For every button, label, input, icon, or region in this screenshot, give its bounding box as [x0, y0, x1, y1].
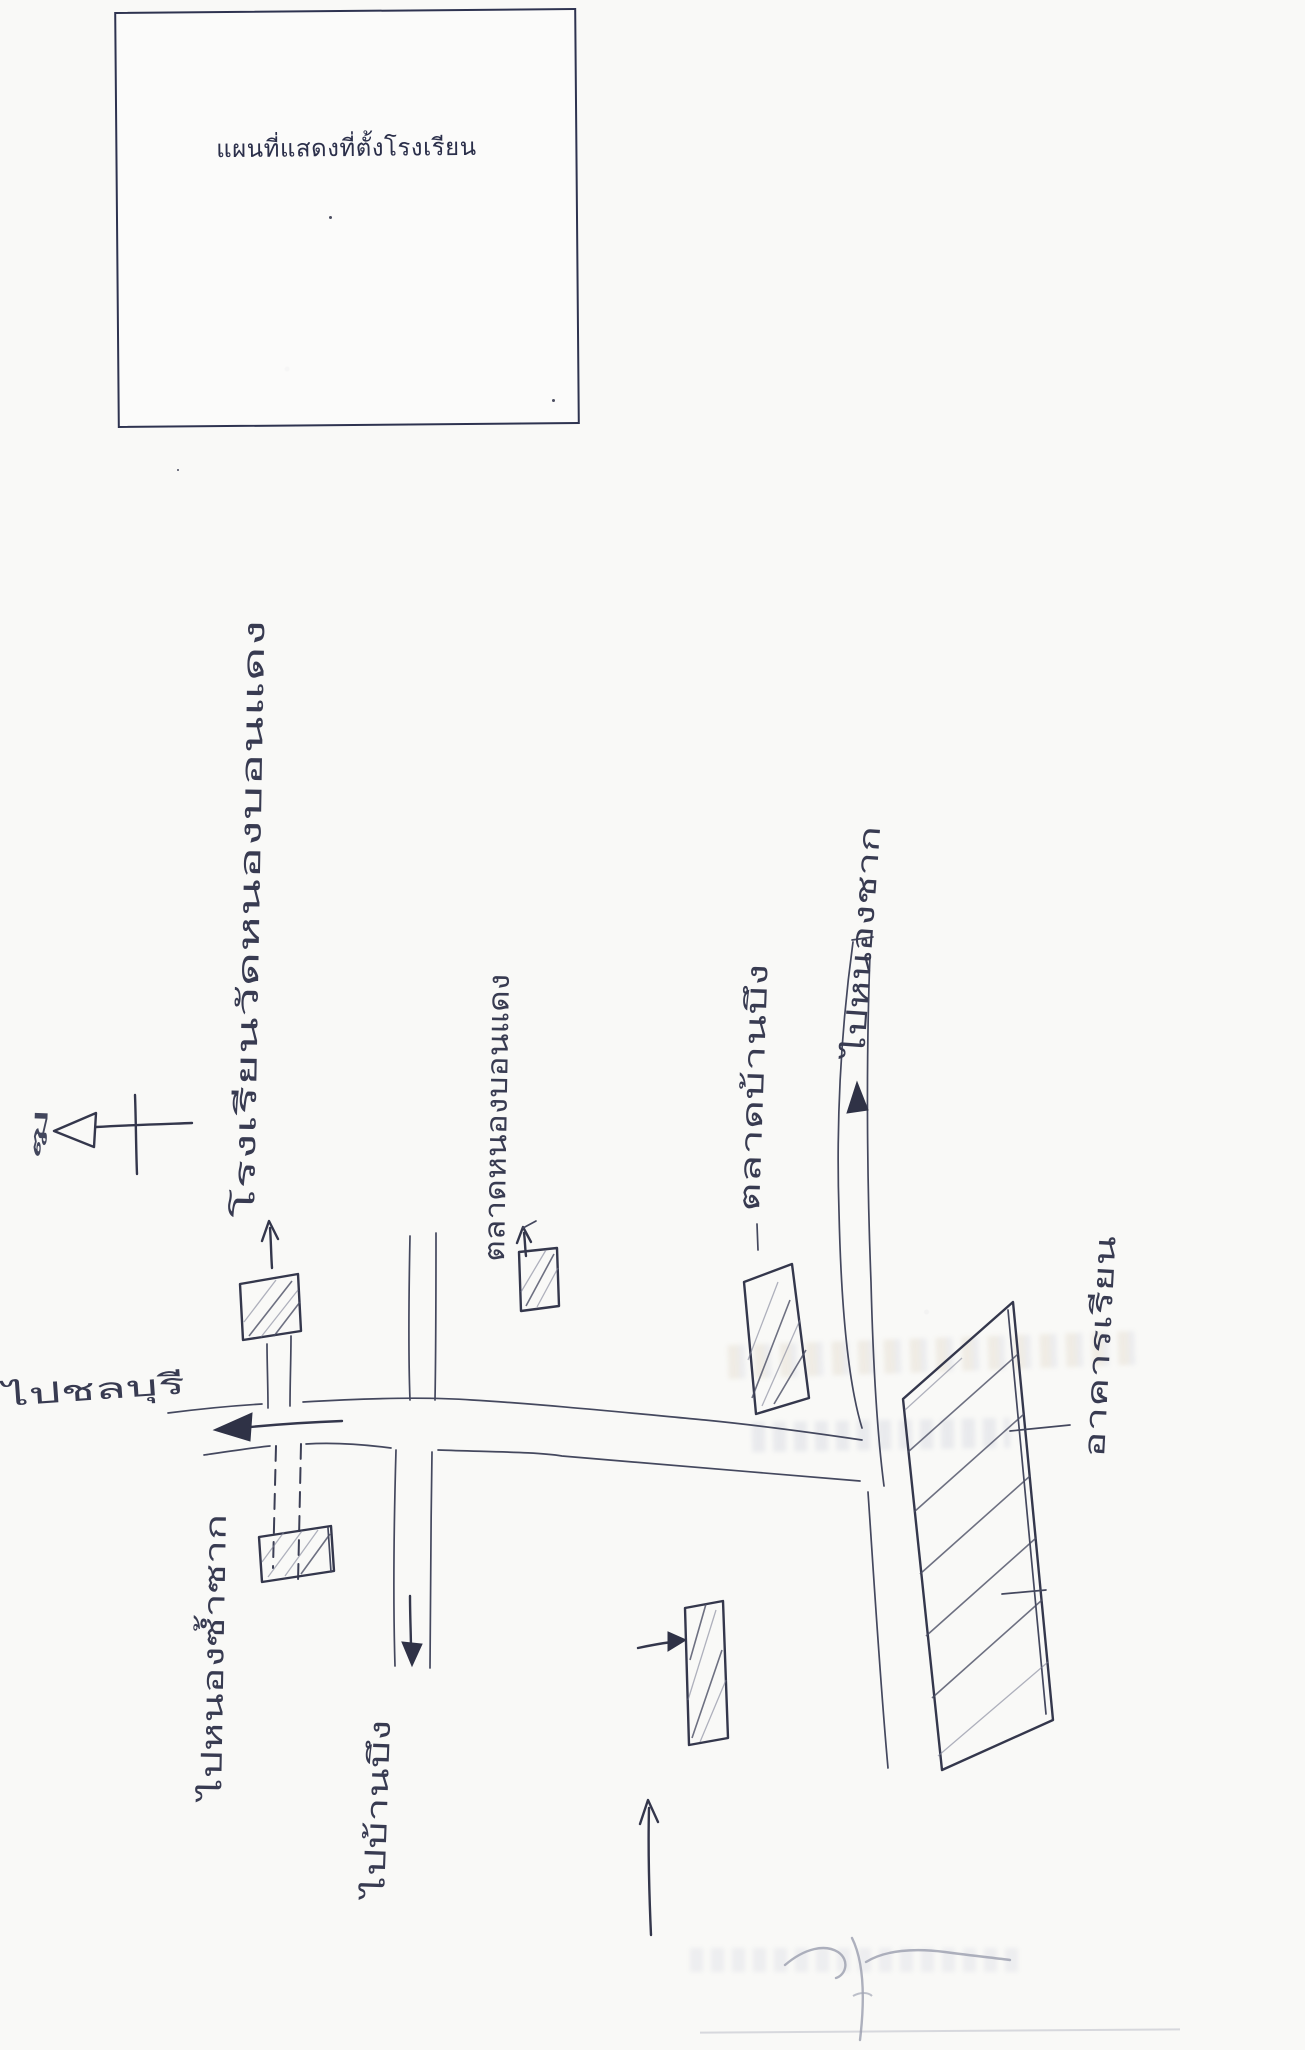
north-road — [838, 937, 888, 1768]
market-center-label: ตลาดหนองบอนแดง — [477, 974, 516, 1263]
label-dash — [757, 1224, 758, 1250]
school-name-label: โรงเรียนวัดหนองบอนแดง — [227, 620, 271, 1219]
market-center-building — [519, 1248, 559, 1311]
market-road — [409, 1233, 436, 1400]
north-mark-label: ฆ — [26, 1107, 54, 1160]
signature-scribble — [785, 1938, 1010, 2040]
lower-left-building — [259, 1526, 334, 1582]
arrow-up-icon — [262, 1221, 278, 1268]
arrow-right-icon — [638, 1632, 686, 1651]
scanned-page: แผนที่แสดงที่ตั้งโรงเรียน ฆ — [0, 0, 1305, 2050]
north-arrow-icon — [54, 1095, 192, 1174]
lower-right-building — [685, 1601, 728, 1745]
road-north-label: ไปหนองชาก — [837, 825, 887, 1062]
school-road — [267, 1336, 291, 1408]
label-pointer-line — [1002, 1590, 1046, 1594]
school-roadside-building — [240, 1274, 301, 1340]
market-right-building — [744, 1264, 809, 1414]
school-building-label: อาคารเรียน — [1077, 1235, 1123, 1459]
road-south-label: ไปบ้านบึง — [357, 1719, 397, 1901]
main-road — [168, 1398, 862, 1481]
south-road — [394, 1450, 432, 1668]
hand-drawn-map: ฆ โร — [0, 0, 1305, 2050]
southwest-road — [273, 1444, 301, 1582]
arrow-up-icon — [847, 1082, 868, 1113]
arrow-down-icon — [402, 1596, 422, 1666]
road-west-label: ไปชลบุรี — [0, 1366, 186, 1414]
market-right-label: ตลาดบ้านบึง — [732, 963, 775, 1212]
main-school-building — [903, 1302, 1053, 1770]
arrow-left-icon — [214, 1413, 342, 1441]
road-southwest-label: ไปหนองซ้ำซาก — [190, 1514, 233, 1804]
arrow-up-icon — [640, 1800, 658, 1935]
